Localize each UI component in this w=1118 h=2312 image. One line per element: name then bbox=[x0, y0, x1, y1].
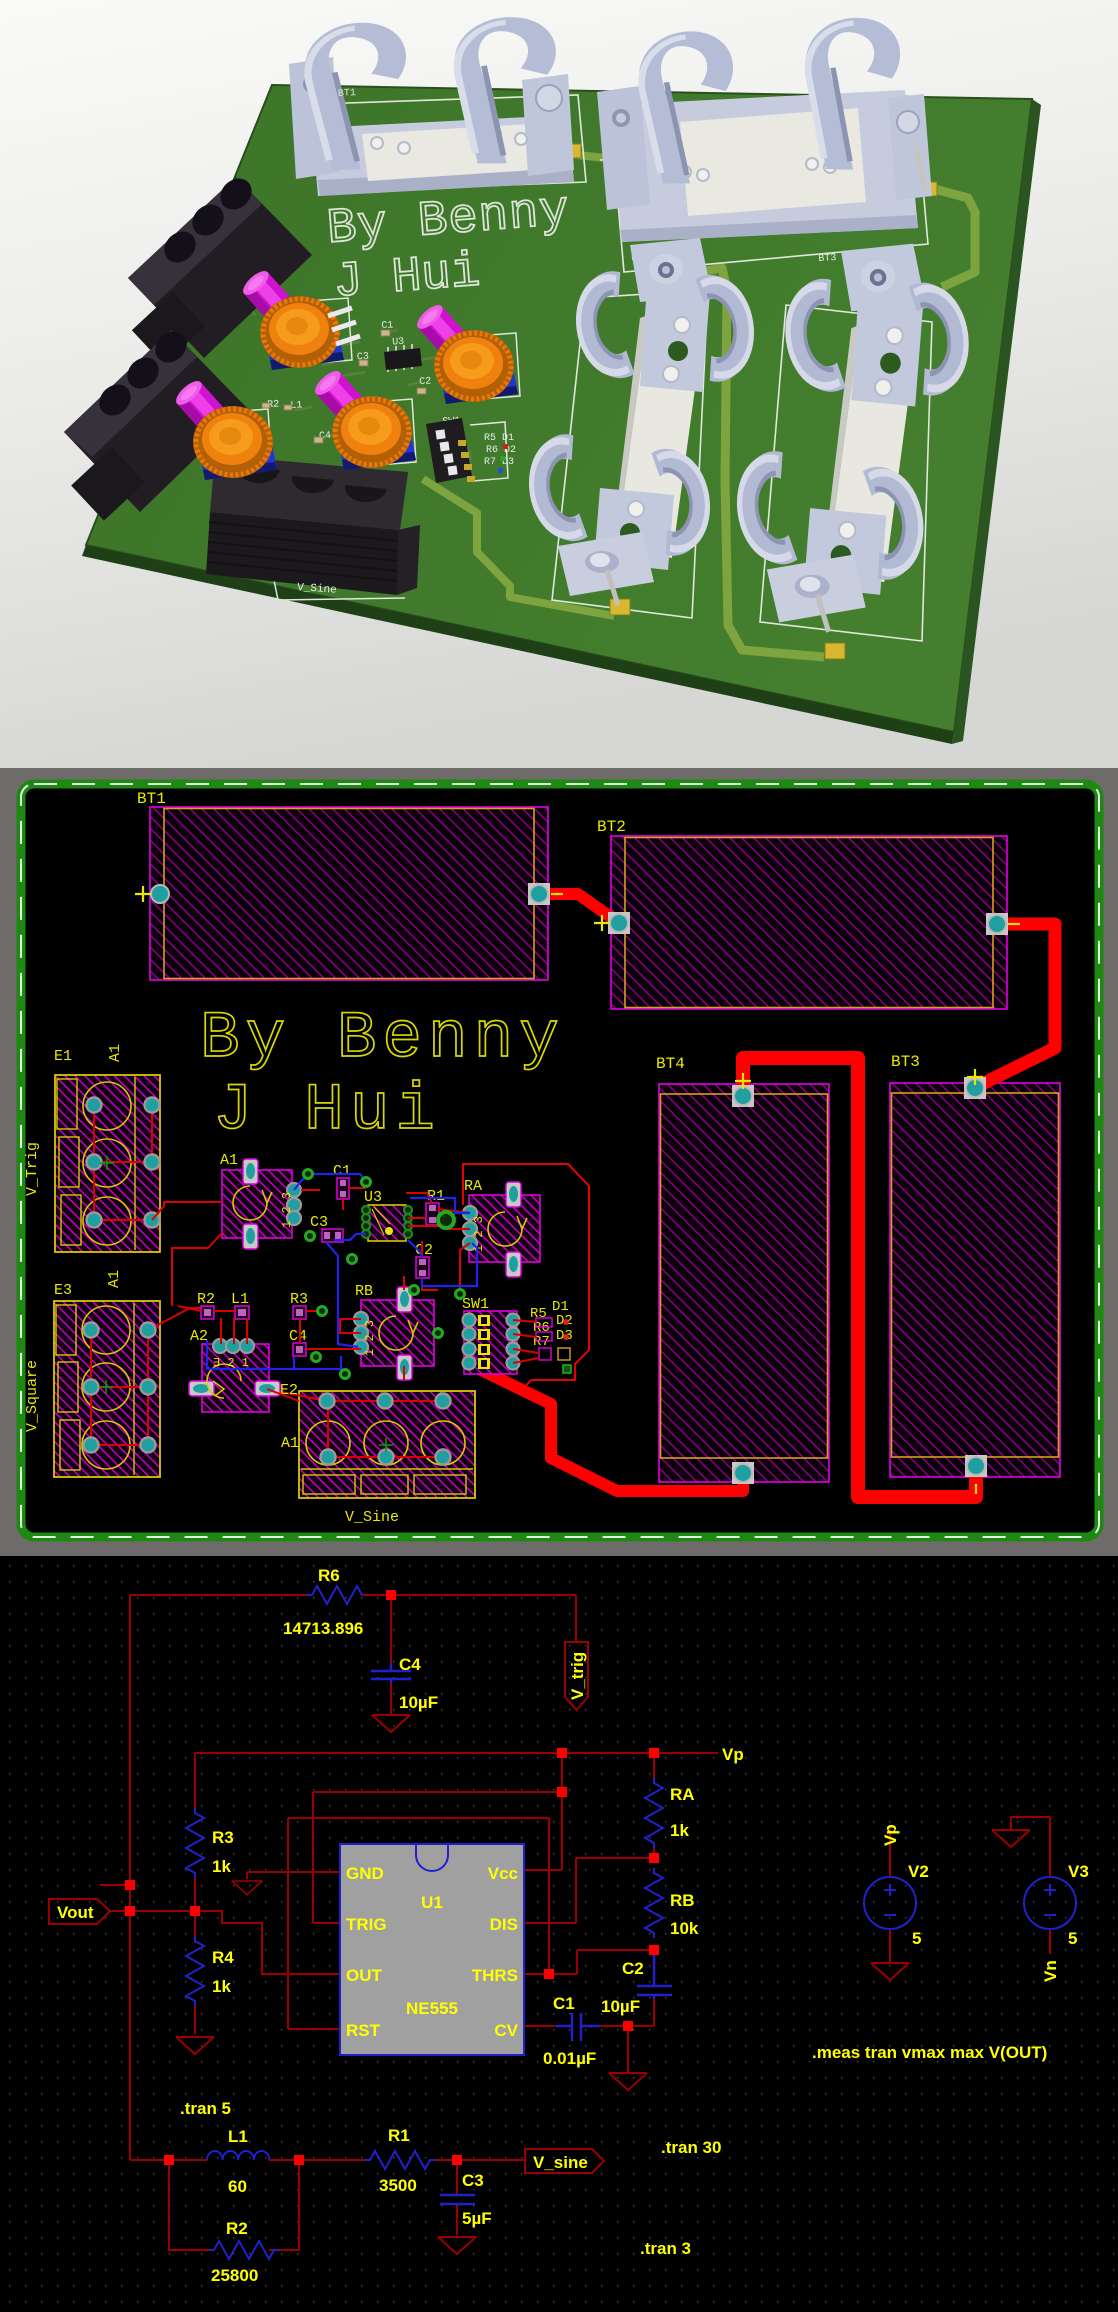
svg-text:5: 5 bbox=[912, 1929, 921, 1948]
svg-text:C1: C1 bbox=[553, 1994, 575, 2013]
svg-text:R3: R3 bbox=[212, 1828, 234, 1847]
svg-text:DIS: DIS bbox=[490, 1915, 518, 1934]
svg-text:.tran 30: .tran 30 bbox=[661, 2138, 721, 2157]
svg-text:10µF: 10µF bbox=[399, 1693, 438, 1712]
svg-text:Vn: Vn bbox=[1041, 1960, 1060, 1982]
svg-text:BT3: BT3 bbox=[891, 1053, 920, 1071]
svg-text:10k: 10k bbox=[670, 1919, 699, 1938]
svg-text:R2: R2 bbox=[226, 2219, 248, 2238]
svg-text:5: 5 bbox=[1068, 1929, 1077, 1948]
svg-text:R2: R2 bbox=[197, 1291, 215, 1308]
svg-text:A2: A2 bbox=[190, 1328, 208, 1345]
svg-text:C2: C2 bbox=[419, 376, 432, 388]
svg-text:NE555: NE555 bbox=[406, 1999, 458, 2018]
svg-text:V_sine: V_sine bbox=[533, 2153, 588, 2172]
svg-text:BT4: BT4 bbox=[656, 1055, 685, 1073]
svg-text:RB: RB bbox=[670, 1891, 695, 1910]
svg-text:RB: RB bbox=[355, 1283, 373, 1300]
svg-text:GND: GND bbox=[346, 1864, 384, 1883]
svg-text:V_Sine: V_Sine bbox=[345, 1509, 399, 1526]
svg-text:25800: 25800 bbox=[211, 2266, 258, 2285]
svg-text:R3: R3 bbox=[290, 1291, 308, 1308]
svg-text:R5 D1: R5 D1 bbox=[484, 433, 514, 444]
svg-text:V_Square: V_Square bbox=[24, 1360, 41, 1432]
svg-text:A1: A1 bbox=[220, 1152, 238, 1169]
svg-text:1 2 3: 1 2 3 bbox=[363, 1320, 377, 1356]
svg-text:E1: E1 bbox=[54, 1048, 72, 1065]
svg-text:Vcc: Vcc bbox=[488, 1864, 518, 1883]
svg-text:10µF: 10µF bbox=[601, 1997, 640, 2016]
svg-text:.tran 3: .tran 3 bbox=[640, 2239, 691, 2258]
svg-text:Vout: Vout bbox=[57, 1903, 94, 1922]
svg-text:By Benny: By Benny bbox=[200, 1001, 565, 1076]
svg-text:TRIG: TRIG bbox=[346, 1915, 387, 1934]
svg-text:A1: A1 bbox=[281, 1435, 299, 1452]
svg-text:C3: C3 bbox=[462, 2171, 484, 2190]
svg-text:V_trig: V_trig bbox=[568, 1652, 587, 1700]
svg-text:CV: CV bbox=[494, 2021, 518, 2040]
svg-text:RA: RA bbox=[670, 1785, 695, 1804]
svg-text:.meas tran vmax max V(OUT): .meas tran vmax max V(OUT) bbox=[812, 2043, 1047, 2062]
svg-text:R4: R4 bbox=[212, 1948, 234, 1967]
svg-text:14713.896: 14713.896 bbox=[283, 1619, 363, 1638]
svg-text:SW1: SW1 bbox=[462, 1296, 489, 1313]
svg-text:R7 D3: R7 D3 bbox=[484, 457, 514, 468]
svg-text:RA: RA bbox=[464, 1178, 482, 1195]
svg-text:3500: 3500 bbox=[379, 2176, 417, 2195]
svg-text:A1: A1 bbox=[107, 1044, 124, 1062]
svg-text:C3: C3 bbox=[310, 1214, 328, 1231]
svg-text:C4: C4 bbox=[289, 1328, 307, 1345]
svg-text:1 2 3: 1 2 3 bbox=[280, 1192, 294, 1228]
svg-text:C4: C4 bbox=[399, 1655, 421, 1674]
svg-text:THRS: THRS bbox=[472, 1966, 518, 1985]
svg-text:V2: V2 bbox=[908, 1862, 929, 1881]
svg-text:R6: R6 bbox=[318, 1566, 340, 1585]
svg-text:V3: V3 bbox=[1068, 1862, 1089, 1881]
svg-text:A1: A1 bbox=[106, 1270, 123, 1288]
svg-text:J Hui: J Hui bbox=[331, 243, 482, 310]
svg-text:OUT: OUT bbox=[346, 1966, 383, 1985]
svg-text:R1: R1 bbox=[388, 2126, 410, 2145]
svg-text:J Hui: J Hui bbox=[213, 1073, 441, 1148]
svg-text:Vp: Vp bbox=[881, 1824, 900, 1846]
svg-text:BT1: BT1 bbox=[137, 790, 166, 808]
svg-text:1k: 1k bbox=[212, 1977, 231, 1996]
svg-text:U3: U3 bbox=[364, 1189, 382, 1206]
svg-text:1k: 1k bbox=[670, 1821, 689, 1840]
svg-text:C2: C2 bbox=[622, 1959, 644, 1978]
svg-text:C1: C1 bbox=[333, 1163, 351, 1180]
svg-text:L1: L1 bbox=[228, 2127, 248, 2146]
svg-text:BT1: BT1 bbox=[338, 88, 357, 100]
svg-text:U3: U3 bbox=[392, 337, 405, 349]
svg-text:BT2: BT2 bbox=[597, 818, 626, 836]
svg-text:V_Trig: V_Trig bbox=[24, 1142, 41, 1196]
svg-text:.tran 5: .tran 5 bbox=[180, 2099, 231, 2118]
svg-text:0.01µF: 0.01µF bbox=[543, 2049, 596, 2068]
svg-text:R6 D2: R6 D2 bbox=[486, 445, 516, 456]
svg-text:Vp: Vp bbox=[722, 1745, 744, 1764]
svg-text:RST: RST bbox=[346, 2021, 381, 2040]
svg-text:L1: L1 bbox=[231, 1291, 249, 1308]
svg-text:U1: U1 bbox=[421, 1893, 443, 1912]
svg-text:60: 60 bbox=[228, 2177, 247, 2196]
svg-text:5µF: 5µF bbox=[462, 2209, 492, 2228]
svg-text:E3: E3 bbox=[54, 1282, 72, 1299]
svg-text:BT3: BT3 bbox=[818, 253, 837, 265]
svg-text:1k: 1k bbox=[212, 1857, 231, 1876]
